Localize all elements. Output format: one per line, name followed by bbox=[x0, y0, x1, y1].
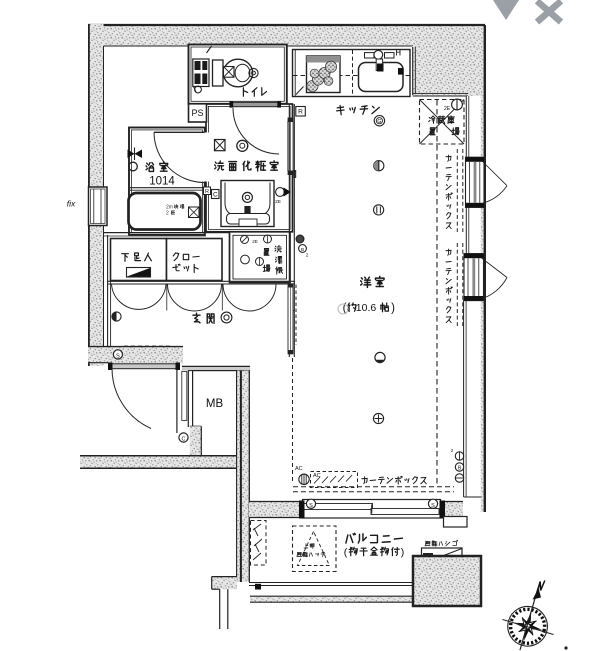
svg-text:2E: 2E bbox=[252, 239, 258, 244]
svg-text:AC: AC bbox=[295, 466, 303, 472]
svg-text:): ) bbox=[391, 303, 395, 315]
svg-text:S: S bbox=[309, 503, 313, 509]
svg-text:R: R bbox=[205, 189, 209, 195]
svg-text:10.6: 10.6 bbox=[356, 302, 377, 314]
svg-text:2: 2 bbox=[166, 211, 169, 217]
svg-text:(: ( bbox=[344, 547, 348, 559]
svg-text:S: S bbox=[116, 353, 120, 359]
svg-text:2E: 2E bbox=[275, 199, 281, 205]
svg-text:R: R bbox=[298, 109, 303, 116]
svg-text:G: G bbox=[377, 119, 381, 125]
svg-text:C: C bbox=[213, 192, 218, 199]
svg-text:2E: 2E bbox=[444, 106, 451, 112]
svg-text:): ) bbox=[401, 547, 405, 559]
svg-text:MB: MB bbox=[206, 398, 224, 410]
svg-text:S: S bbox=[431, 503, 435, 509]
svg-text:B: B bbox=[301, 247, 304, 253]
svg-text:C: C bbox=[182, 437, 186, 443]
svg-text:PS: PS bbox=[191, 108, 203, 118]
svg-text:fix: fix bbox=[67, 199, 76, 209]
svg-text:1014: 1014 bbox=[149, 176, 175, 188]
